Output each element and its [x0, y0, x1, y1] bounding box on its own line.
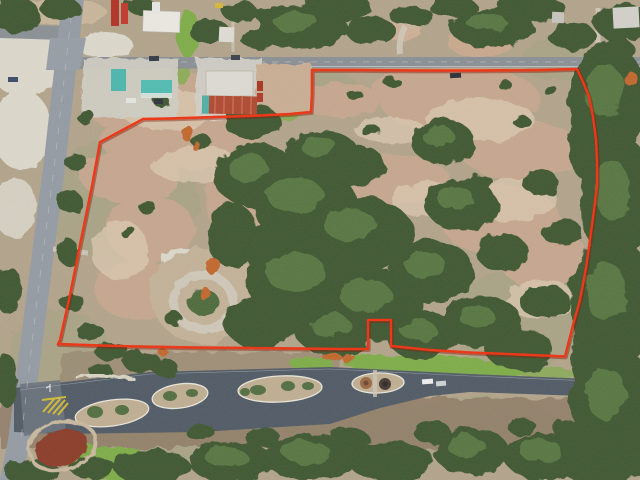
aerial-photo — [0, 0, 640, 480]
aerial-photo-canvas — [0, 0, 640, 480]
photo-grain-overlay — [0, 0, 640, 480]
